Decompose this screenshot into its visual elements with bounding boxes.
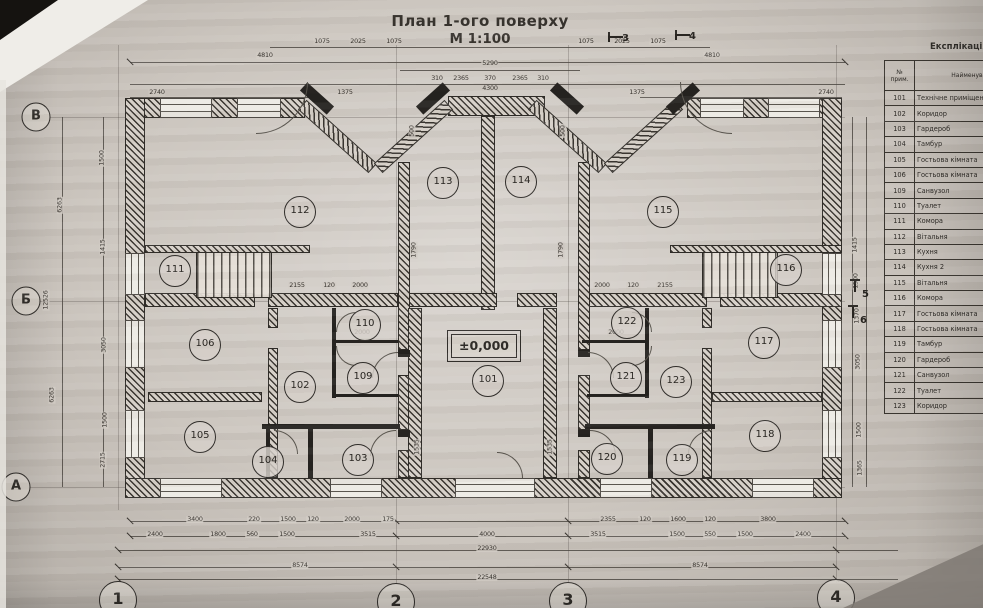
dimension-line (270, 47, 710, 48)
dimension-label: 2000 (593, 282, 610, 289)
dimension-label: 2400 (146, 531, 163, 538)
explication-row: 118Гостьова кімната (885, 321, 983, 336)
partition-wall (578, 430, 590, 437)
dimension-line (400, 70, 580, 71)
room-number-circle: 103 (342, 444, 374, 476)
explication-row: 112Вітальня (885, 229, 983, 244)
room-number-cell: 114 (885, 260, 915, 275)
dimension-label: 5290 (481, 60, 498, 67)
partition-wall (332, 308, 336, 398)
window-opening (822, 410, 842, 458)
dimension-label: 3515 (589, 531, 606, 538)
room-name-cell: Гостьова кімната (915, 167, 983, 182)
dimension-label: 220 (247, 516, 261, 523)
room-name-cell: Туалет (915, 198, 983, 213)
partition-wall (308, 428, 313, 478)
dimension-label: 1500 (279, 516, 296, 523)
room-number-cell: 103 (885, 121, 915, 136)
dimension-line (118, 550, 898, 551)
partition-wall (398, 350, 410, 357)
dimension-label: 1415 (852, 236, 859, 253)
window-opening (160, 478, 222, 498)
dimension-label: 1415 (100, 238, 107, 255)
wall-segment (517, 293, 557, 307)
dimension-label: 120 (638, 516, 652, 523)
wall-segment (578, 162, 590, 350)
room-number-circle: 119 (666, 444, 698, 476)
wall-segment (578, 450, 590, 478)
dimension-label: 120 (626, 282, 640, 289)
door-swing-arc (632, 346, 652, 366)
door-swing-arc (370, 430, 396, 456)
dimension-line (118, 579, 898, 580)
scanned-floor-plan-page: План 1-ого поверху М 1:100 4810481010752… (0, 0, 983, 608)
wall-segment-diagonal (298, 100, 377, 173)
dimension-label: 3800 (759, 516, 776, 523)
room-name-cell: Технічне приміщення (915, 91, 983, 106)
explication-col-name: Найменування (915, 61, 983, 91)
axis-grid-line (118, 45, 119, 510)
staircase (196, 252, 272, 298)
wall-corner-block (550, 82, 584, 114)
wall-segment (702, 308, 712, 328)
section-cut-marker: 5 (862, 289, 869, 300)
room-number-cell: 122 (885, 383, 915, 398)
room-number-cell: 121 (885, 368, 915, 383)
dimension-label: 2740 (148, 89, 165, 96)
axis-grid-line (568, 45, 569, 585)
room-name-cell: Вітальня (915, 229, 983, 244)
plan-title-text: План 1-ого поверху (330, 12, 630, 30)
room-number-cell: 112 (885, 229, 915, 244)
dimension-label: 3050 (855, 353, 862, 370)
dimension-label: 12526 (43, 289, 50, 310)
room-number-circle: 116 (770, 254, 802, 286)
partition-wall (398, 430, 410, 437)
room-number-cell: 118 (885, 321, 915, 336)
window-opening (160, 98, 212, 118)
explication-row: 116Комора (885, 291, 983, 306)
room-number-cell: 117 (885, 306, 915, 321)
room-number-circle: 101 (472, 365, 504, 397)
dimension-label: 560 (245, 531, 259, 538)
explication-row: 120Гардероб (885, 352, 983, 367)
dimension-label: 2155 (656, 282, 673, 289)
dimension-label: 1365 (857, 459, 864, 476)
room-number-cell: 119 (885, 337, 915, 352)
dimension-label: 1800 (209, 531, 226, 538)
room-name-cell: Гардероб (915, 352, 983, 367)
room-number-circle: 115 (647, 196, 679, 228)
axis-column-marker: 2 (377, 583, 415, 608)
dimension-label: 3400 (186, 516, 203, 523)
explication-row: 102Коридор (885, 106, 983, 121)
dimension-label: 310 (536, 75, 550, 82)
drawing-title: План 1-ого поверху М 1:100 (330, 12, 630, 47)
dimension-label: 4810 (256, 52, 273, 59)
room-number-circle: 117 (748, 327, 780, 359)
room-number-circle: 122 (611, 307, 643, 339)
room-name-cell: Гостьова кімната (915, 321, 983, 336)
dimension-label: 8574 (291, 562, 308, 569)
dimension-label: 22930 (476, 545, 497, 552)
room-number-circle: 111 (159, 255, 191, 287)
wall-segment (268, 308, 278, 328)
dimension-line (130, 521, 845, 522)
dimension-label: 2365 (511, 75, 528, 82)
dimension-label: 2355 (599, 516, 616, 523)
wall-segment (268, 293, 398, 307)
dimension-label: 8574 (691, 562, 708, 569)
dimension-label: 1600 (669, 516, 686, 523)
wall-segment (712, 392, 822, 402)
dimension-label: 500 (560, 124, 567, 138)
dimension-label: 1500 (278, 531, 295, 538)
explication-row: 114Кухня 2 (885, 260, 983, 275)
dimension-label: 1500 (102, 411, 109, 428)
room-name-cell: Коридор (915, 398, 983, 413)
dimension-label: 550 (703, 531, 717, 538)
dimension-label: 2000 (343, 516, 360, 523)
dimension-label: 22548 (476, 574, 497, 581)
explication-row: 105Гостьова кімната (885, 152, 983, 167)
dimension-label: 2740 (817, 89, 834, 96)
axis-column-marker: 4 (817, 579, 855, 608)
room-number-cell: 104 (885, 137, 915, 152)
floor-plan-drawing: 4810481010752025107510752025107552903102… (0, 0, 983, 608)
room-number-cell: 123 (885, 398, 915, 413)
dimension-label: 120 (322, 282, 336, 289)
dimension-label: 3515 (359, 531, 376, 538)
axis-row-marker: А (2, 473, 31, 502)
axis-row-marker: В (22, 103, 51, 132)
dimension-label: 1500 (99, 149, 106, 166)
explication-row: 122Туалет (885, 383, 983, 398)
room-number-cell: 105 (885, 152, 915, 167)
door-swing-arc (256, 82, 308, 134)
room-name-cell: Гостьова кімната (915, 306, 983, 321)
room-name-cell: Тамбур (915, 337, 983, 352)
dimension-line (62, 117, 63, 487)
room-number-circle: 120 (591, 443, 623, 475)
room-number-cell: 120 (885, 352, 915, 367)
axis-row-marker: Б (12, 287, 41, 316)
room-number-circle: 114 (505, 166, 537, 198)
room-number-cell: 113 (885, 244, 915, 259)
dimension-label: 1375 (628, 89, 645, 96)
room-name-cell: Кухня 2 (915, 260, 983, 275)
door-swing-arc (497, 452, 523, 478)
explication-row: 117Гостьова кімната (885, 306, 983, 321)
door-swing-arc (336, 346, 356, 366)
dimension-label: 2000 (351, 282, 368, 289)
room-name-cell: Гардероб (915, 121, 983, 136)
explication-row: 110Туалет (885, 198, 983, 213)
room-name-cell: Комора (915, 214, 983, 229)
dimension-label: 1500 (736, 531, 753, 538)
room-name-cell: Вітальня (915, 275, 983, 290)
room-name-cell: Санвузол (915, 368, 983, 383)
room-number-circle: 118 (749, 420, 781, 452)
explication-table: № прим. Найменування 101Технічне приміще… (884, 60, 983, 420)
dimension-label: 3050 (101, 336, 108, 353)
partition-wall (582, 340, 645, 343)
section-cut-marker: 6 (860, 315, 867, 326)
dimension-label: 500 (409, 124, 416, 138)
room-number-circle: 112 (284, 196, 316, 228)
room-number-cell: 102 (885, 106, 915, 121)
axis-column-marker: 1 (99, 581, 137, 608)
room-number-cell: 110 (885, 198, 915, 213)
room-number-circle: 104 (252, 446, 284, 478)
partition-wall (332, 394, 398, 397)
explication-row: 113Кухня (885, 244, 983, 259)
dimension-label: 4300 (481, 85, 498, 92)
dimension-label: 2400 (794, 531, 811, 538)
wall-segment (481, 116, 495, 310)
dimension-line (103, 117, 104, 487)
axis-column-marker: 3 (549, 582, 587, 608)
room-number-circle: 113 (427, 167, 459, 199)
explication-row: 115Вітальня (885, 275, 983, 290)
dimension-label: 1535 (547, 438, 554, 455)
room-number-circle: 106 (189, 329, 221, 361)
dimension-line (852, 117, 853, 487)
room-number-cell: 106 (885, 167, 915, 182)
room-number-circle: 109 (347, 362, 379, 394)
window-opening (822, 320, 842, 368)
room-number-cell: 111 (885, 214, 915, 229)
dimension-label: 1375 (336, 89, 353, 96)
dimension-line (866, 117, 867, 487)
dimension-line (118, 567, 836, 568)
explication-row: 106Гостьова кімната (885, 167, 983, 182)
explication-row: 121Санвузол (885, 368, 983, 383)
explication-row: 111Комора (885, 214, 983, 229)
room-number-circle: 123 (660, 366, 692, 398)
partition-wall (648, 428, 653, 478)
dimension-label: 175 (381, 516, 395, 523)
room-name-cell: Санвузол (915, 183, 983, 198)
dimension-label: 1500 (856, 421, 863, 438)
room-number-circle: 102 (284, 371, 316, 403)
dimension-label: 6263 (57, 196, 64, 213)
wall-segment (702, 348, 712, 478)
room-number-cell: 109 (885, 183, 915, 198)
dimension-label: 4000 (478, 531, 495, 538)
window-opening (600, 478, 652, 498)
dimension-label: 1500 (668, 531, 685, 538)
staircase (702, 252, 778, 298)
dimension-label: 120 (306, 516, 320, 523)
dimension-label: 6263 (49, 386, 56, 403)
room-name-cell: Туалет (915, 383, 983, 398)
dimension-label: 2715 (100, 451, 107, 468)
window-opening (752, 478, 814, 498)
dimension-label: 1075 (649, 38, 666, 45)
section-cut-flag (854, 279, 856, 292)
room-number-circle: 105 (184, 421, 216, 453)
window-opening (768, 98, 820, 118)
axis-grid-line (396, 45, 397, 585)
dimension-label: 4810 (703, 52, 720, 59)
explication-row: 123Коридор (885, 398, 983, 413)
dimension-label: 2155 (288, 282, 305, 289)
explication-row: 104Тамбур (885, 137, 983, 152)
dimension-label: 370 (483, 75, 497, 82)
window-opening (822, 253, 842, 295)
explication-row: 109Санвузол (885, 183, 983, 198)
partition-wall (262, 424, 400, 429)
door-swing-arc (680, 82, 732, 134)
dimension-label: 120 (703, 516, 717, 523)
dimension-label: 1535 (414, 438, 421, 455)
room-number-circle: 110 (349, 309, 381, 341)
partition-wall (587, 394, 645, 397)
explication-title: Експлікація приміщень (930, 42, 983, 52)
room-name-cell: Комора (915, 291, 983, 306)
explication-col-number: № прим. (885, 61, 915, 91)
room-name-cell: Тамбур (915, 137, 983, 152)
elevation-mark: ±0,000 (451, 334, 517, 358)
room-number-cell: 115 (885, 275, 915, 290)
dimension-label: 310 (430, 75, 444, 82)
room-number-circle: 121 (610, 362, 642, 394)
window-opening (455, 478, 535, 498)
dimension-label: 2365 (452, 75, 469, 82)
explication-row: 119Тамбур (885, 337, 983, 352)
room-number-cell: 116 (885, 291, 915, 306)
section-cut-flag (675, 34, 690, 36)
wall-segment (587, 293, 707, 307)
wall-segment (578, 375, 590, 430)
explication-row: 103Гардероб (885, 121, 983, 136)
explication-row: 101Технічне приміщення (885, 91, 983, 106)
dimension-label: 1790 (558, 241, 565, 258)
section-cut-flag (852, 305, 854, 318)
room-name-cell: Гостьова кімната (915, 152, 983, 167)
wall-segment (398, 293, 497, 307)
window-opening (125, 253, 145, 295)
room-number-cell: 101 (885, 91, 915, 106)
window-opening (125, 410, 145, 458)
room-name-cell: Кухня (915, 244, 983, 259)
plan-scale-text: М 1:100 (330, 31, 630, 47)
section-cut-marker: 4 (689, 31, 696, 42)
window-opening (330, 478, 382, 498)
room-name-cell: Коридор (915, 106, 983, 121)
dimension-label: 1790 (411, 241, 418, 258)
wall-segment (148, 392, 262, 402)
dimension-label: 1075 (313, 38, 330, 45)
window-opening (125, 320, 145, 368)
